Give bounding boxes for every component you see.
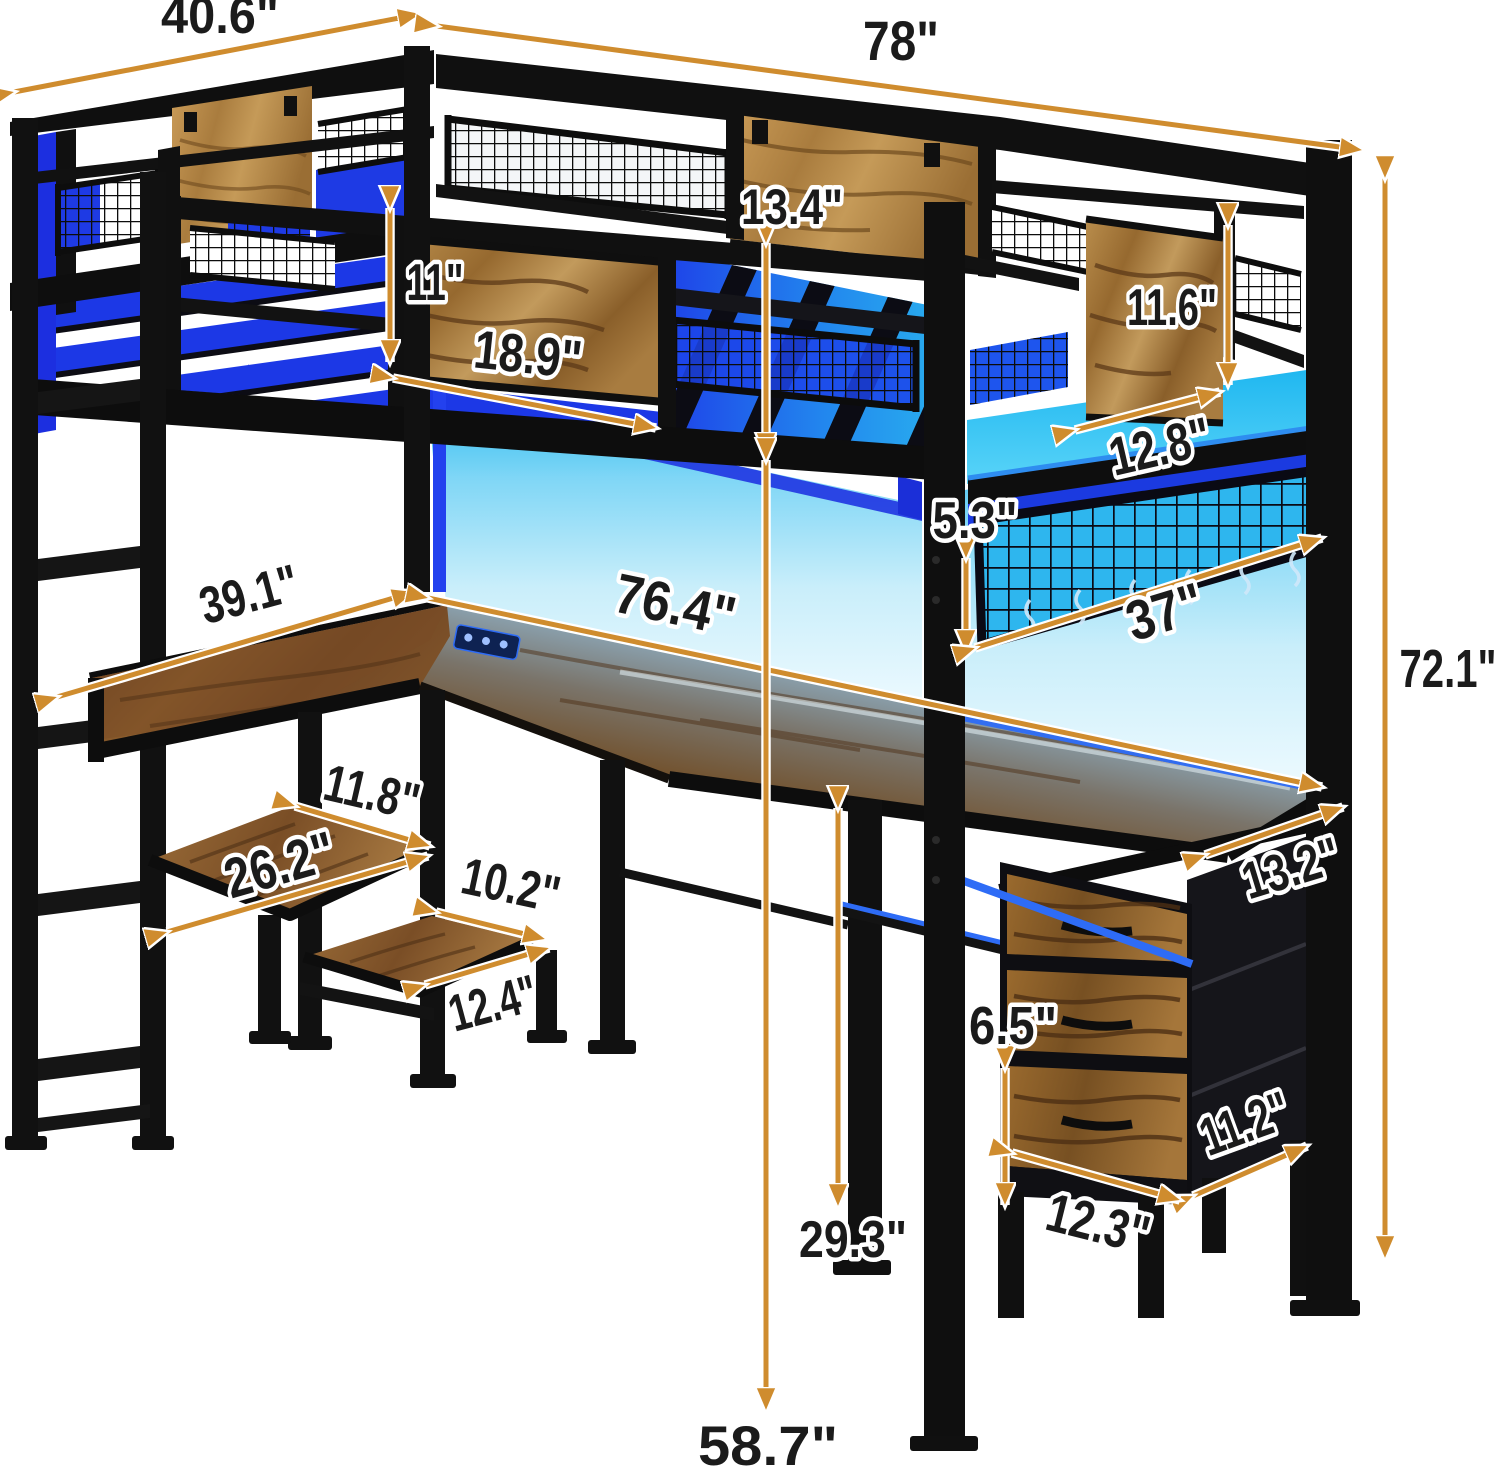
svg-text:11.6": 11.6"	[1127, 279, 1217, 337]
svg-text:11": 11"	[407, 254, 464, 312]
svg-text:78": 78"	[863, 9, 939, 72]
svg-text:18.9": 18.9"	[471, 320, 585, 391]
svg-text:5.3": 5.3"	[933, 492, 1018, 550]
svg-text:72.1": 72.1"	[1400, 639, 1497, 699]
svg-text:40.6": 40.6"	[161, 0, 279, 45]
svg-text:6.5": 6.5"	[969, 996, 1057, 1056]
svg-text:13.4": 13.4"	[741, 179, 843, 235]
svg-text:29.3": 29.3"	[799, 1211, 907, 1269]
svg-text:58.7": 58.7"	[698, 1414, 838, 1469]
